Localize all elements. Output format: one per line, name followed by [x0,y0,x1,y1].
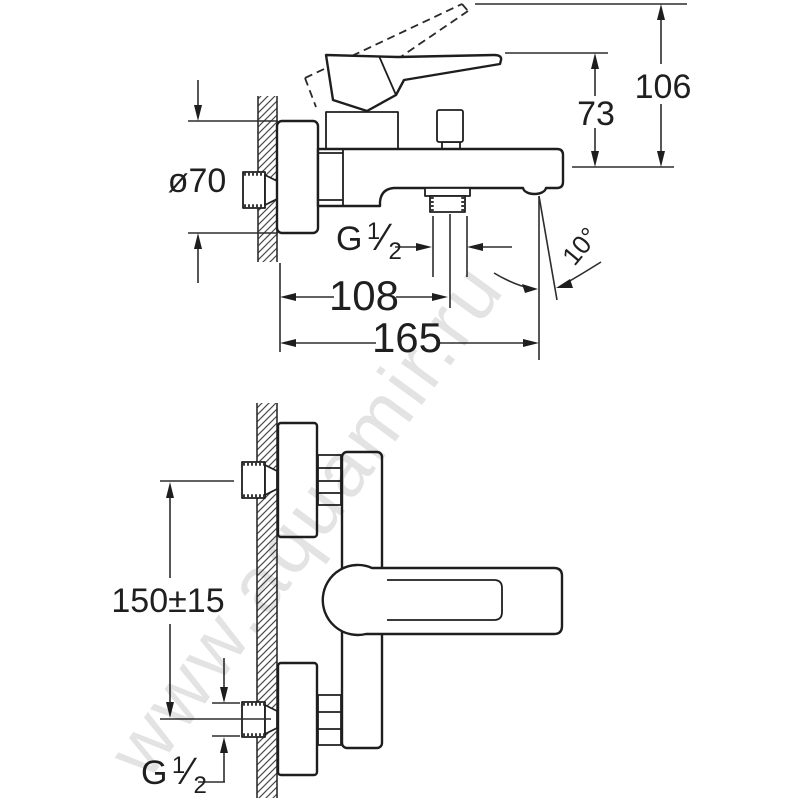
thread-nipple-bottom [318,695,341,745]
dim-label-flange-diameter: ø70 [168,162,227,200]
dim-label-wall-to-outlet: 108 [329,272,399,319]
cartridge-housing [326,112,398,150]
thread-denominator: 2 [389,238,402,265]
wall-flange-bottom [278,663,317,775]
drawing-canvas: ø70 106 73 G 1 ⁄ 2 [0,0,800,800]
thread-prefix: G [336,220,362,258]
diverter-knob [437,110,463,151]
faucet-dimension-drawing: ø70 106 73 G 1 ⁄ 2 [0,0,800,800]
dim-label-lever-height: 73 [577,95,615,133]
dim-label-outlet-thread: G 1 ⁄ 2 [336,217,402,265]
outlet-thread [425,188,470,212]
thread-numerator: 1 [367,218,380,245]
handle-front [323,565,562,635]
handle-lever [326,55,501,111]
thread-denominator: 2 [194,772,207,799]
dim-label-spout-angle: 10° [556,222,604,271]
wall-flange [277,121,318,233]
dim-label-total-height: 106 [635,68,692,106]
